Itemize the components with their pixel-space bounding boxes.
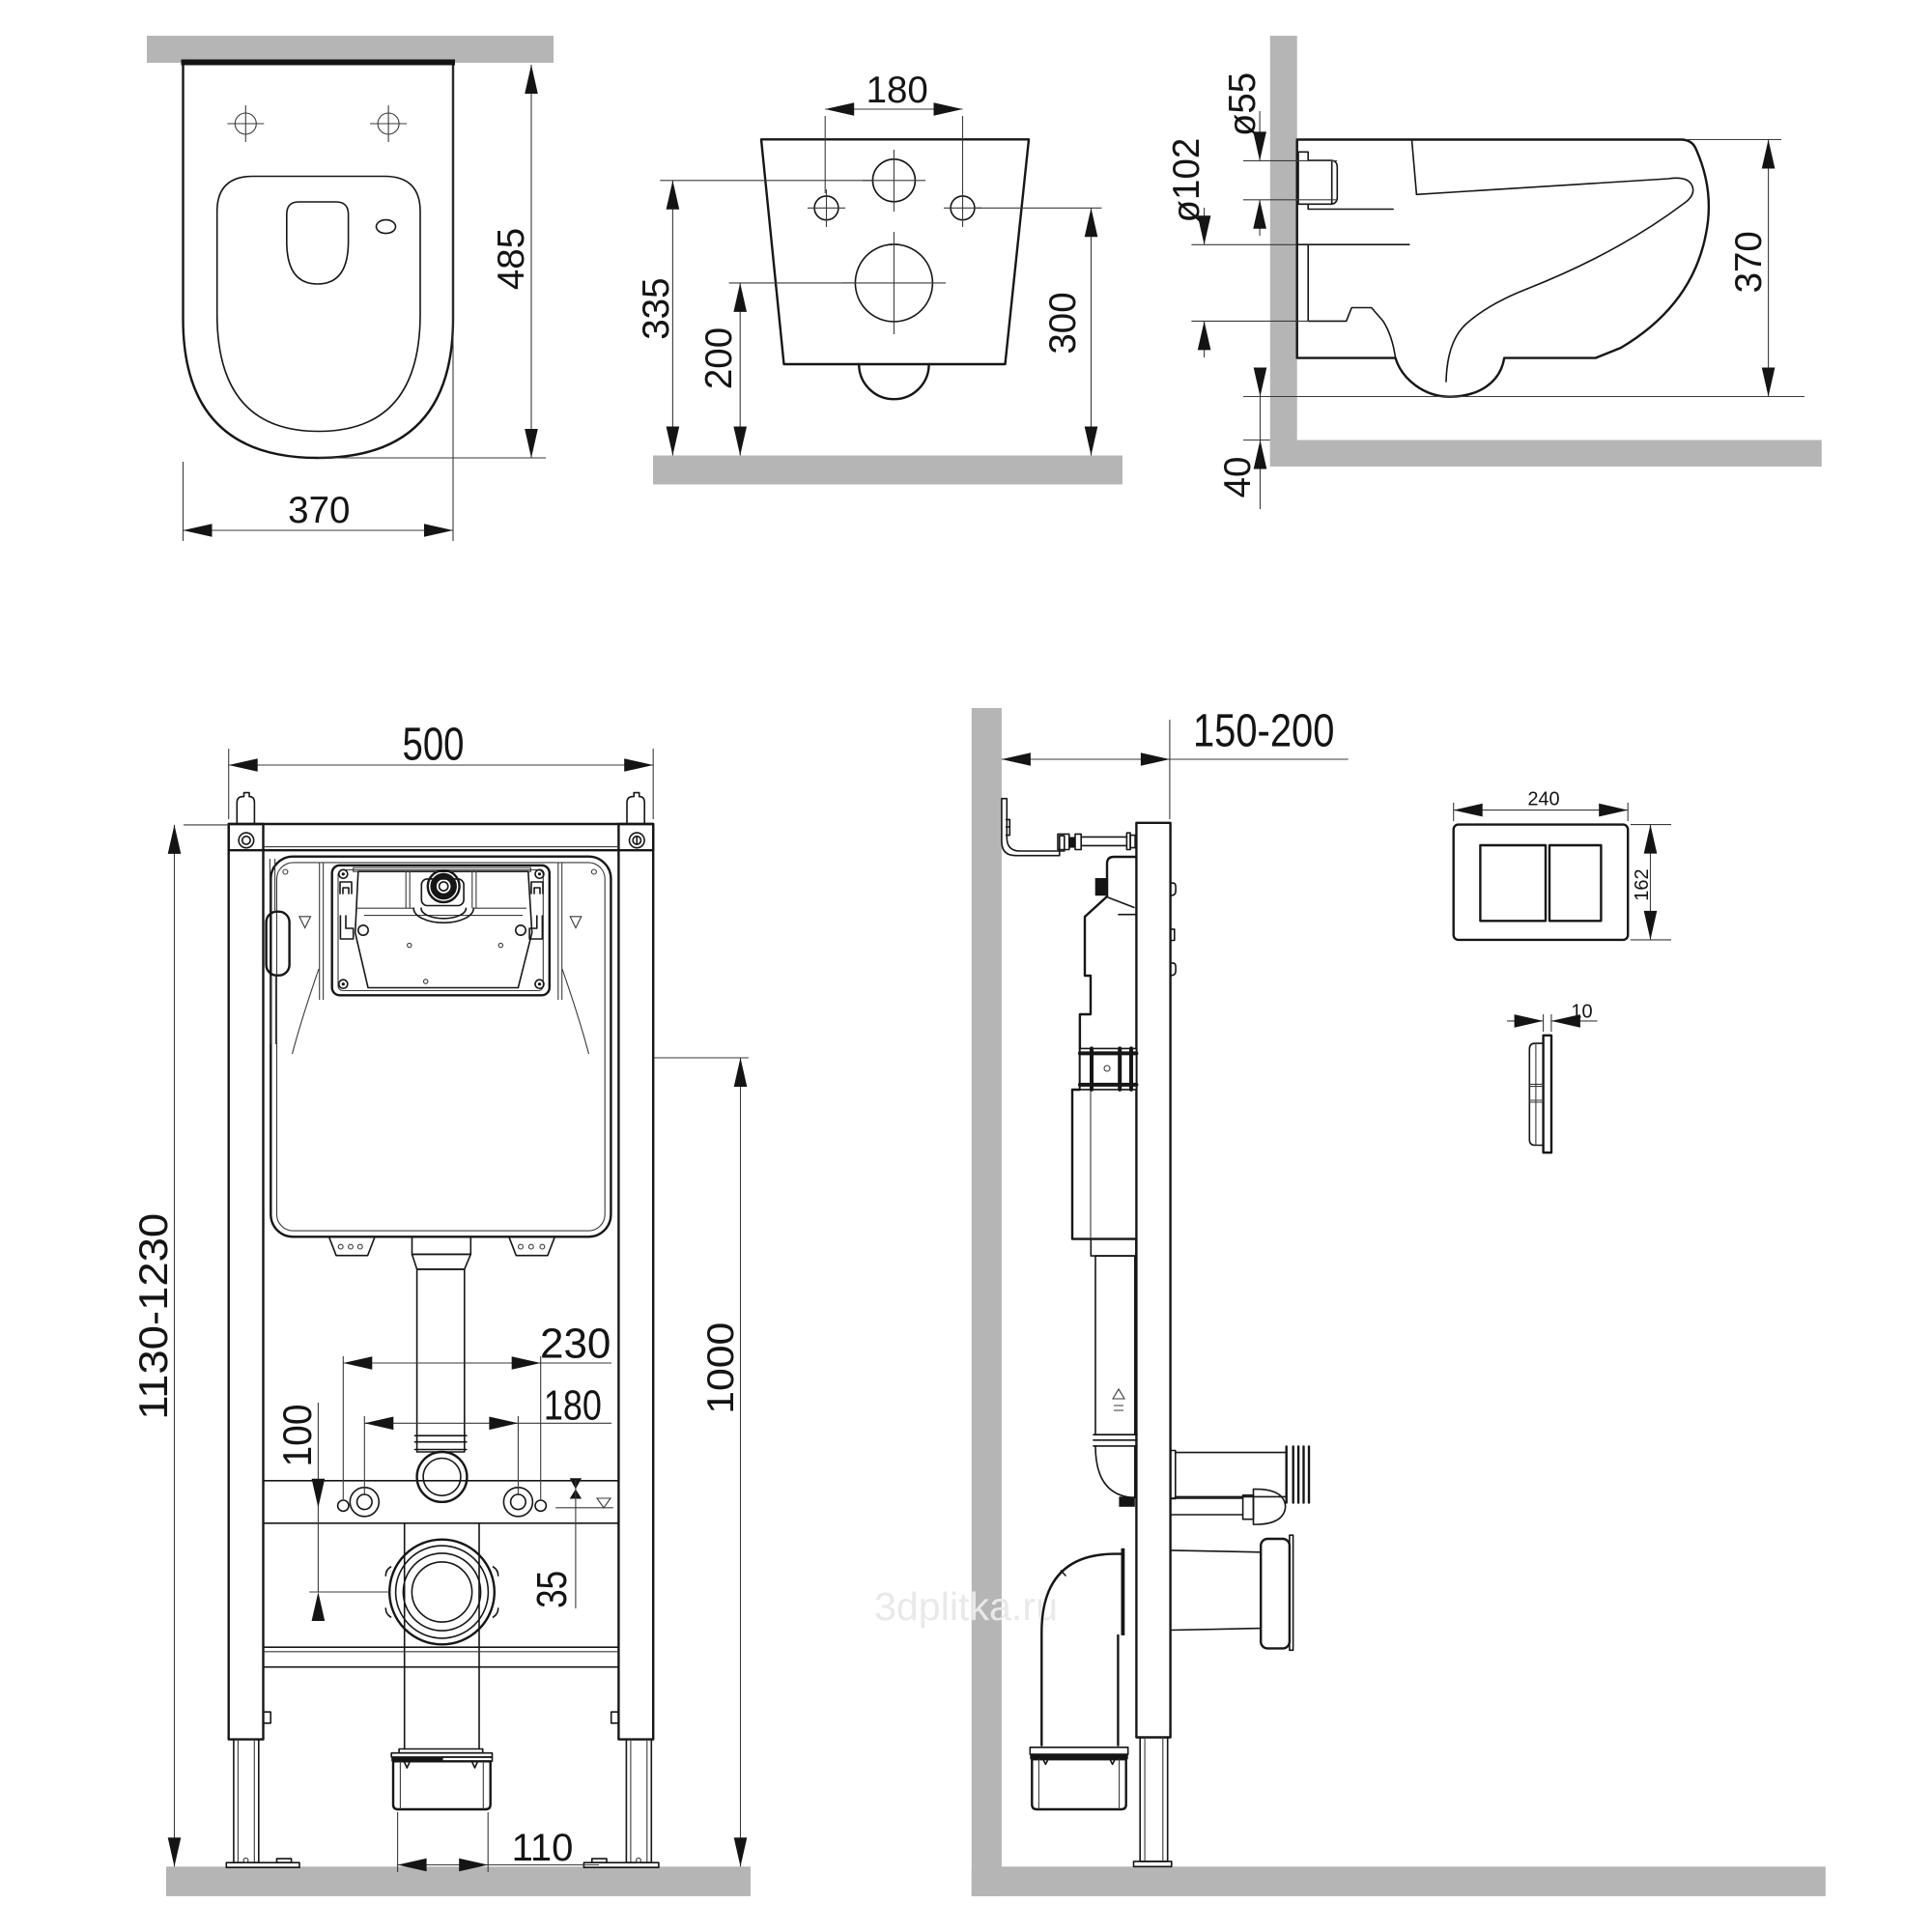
svg-text:300: 300	[1042, 292, 1084, 354]
svg-text:1130-1230: 1130-1230	[130, 1213, 176, 1420]
svg-text:240: 240	[1527, 789, 1559, 810]
svg-text:200: 200	[698, 327, 740, 389]
svg-text:3dplitka.ru: 3dplitka.ru	[874, 1584, 1058, 1629]
svg-text:110: 110	[512, 1827, 574, 1869]
svg-text:100: 100	[274, 1405, 320, 1467]
svg-text:ø55: ø55	[1222, 72, 1264, 136]
svg-text:150-200: 150-200	[1193, 705, 1335, 756]
svg-text:370: 370	[288, 490, 350, 531]
svg-text:335: 335	[636, 277, 677, 339]
svg-text:485: 485	[491, 228, 532, 290]
svg-text:370: 370	[1728, 231, 1770, 293]
svg-text:35: 35	[528, 1571, 576, 1608]
svg-text:180: 180	[867, 70, 928, 111]
svg-text:180: 180	[544, 1381, 602, 1429]
svg-text:10: 10	[1571, 1001, 1592, 1022]
svg-text:230: 230	[540, 1321, 611, 1368]
svg-text:ø102: ø102	[1166, 138, 1207, 223]
svg-text:500: 500	[403, 719, 465, 770]
svg-text:162: 162	[1632, 868, 1653, 900]
svg-text:1000: 1000	[700, 1322, 742, 1414]
svg-text:40: 40	[1217, 457, 1259, 498]
